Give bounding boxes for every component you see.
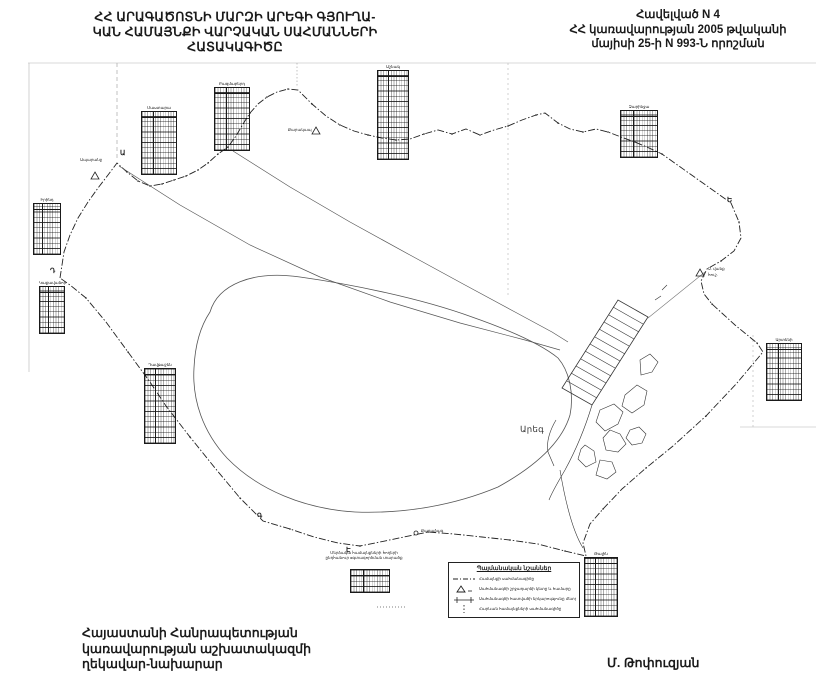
label-karadzag: Քարաձագ (421, 529, 443, 534)
coord-table-10-grid (350, 569, 390, 593)
coord-table-4: Իրինդ (33, 197, 61, 255)
vertex-letter-e: Ե (727, 197, 732, 204)
legend-item-adjacent-label: Հարևան համայնքների սահմանագիծը (479, 607, 561, 612)
legend-item-segment: Սահմանագծի հատվածի երկարությունը մետրերո… (452, 594, 576, 604)
coord-table-3: Աշնակ (377, 64, 409, 160)
legend-item-segment-label: Սահմանագծի հատվածի երկարությունը մետրերո… (479, 597, 576, 602)
authority-line3: ղեկավար-նախարար (82, 657, 311, 673)
coord-table-7-grid (620, 110, 658, 158)
authority-line2: կառավարության աշխատակազմի (82, 642, 311, 658)
coord-table-9-caption: Թալին (584, 551, 618, 556)
coord-table-9-grid (584, 557, 618, 617)
legend-item-boundary-label: Համայնքի սահմանագիծը (479, 577, 534, 582)
signature-name: Մ. Թոփուզյան (607, 655, 699, 670)
coord-table-8: Արտենի (766, 337, 802, 401)
issuing-authority: Հայաստանի Հանրապետության կառավարության ա… (82, 626, 311, 673)
label-karakap: Քարակապ (288, 128, 312, 133)
coord-table-5-caption: Կաքավաձոր (39, 280, 66, 285)
coord-table-8-caption: Արտենի (766, 337, 802, 342)
coord-table-5-grid (39, 286, 65, 334)
scanned-map-page: ՀՀ ԱՐԱԳԱԾՈՏՆԻ ՄԱՐԶԻ ԱՐԵԳԻ ԳՅՈՒՂԱ- ԿԱՆ ՀԱ… (0, 0, 816, 680)
coord-table-1-caption: Մաստարա (141, 105, 177, 110)
coord-table-6-caption: Դավթաշեն (144, 362, 176, 367)
dash-dot-line-icon (452, 576, 476, 582)
legend-item-turn-point: Սահմանագծի շրջադարձի կետը և համարը (452, 584, 576, 594)
legend-title: Պայմանական նշաններ (452, 565, 576, 572)
coord-table-8-grid (766, 343, 802, 401)
coord-table-4-caption: Իրինդ (33, 197, 61, 202)
vertex-letter-d: Դ (50, 268, 55, 275)
coord-table-2: Բազմաբերդ (214, 81, 250, 151)
legend-item-adjacent: Հարևան համայնքների սահմանագիծը (452, 604, 576, 614)
note-line2: ընդհանուր օգտագործման տարածք (314, 555, 414, 560)
interior-land-loop (194, 275, 572, 512)
internal-division-lines (119, 151, 568, 350)
coord-table-5: Կաքավաձոր (39, 280, 66, 334)
dotted-line-icon (452, 605, 476, 613)
coord-table-6-grid (144, 368, 176, 444)
label-aparan: Ապարանջ (80, 158, 102, 163)
adjacent-lands-note: Մերձակա համայնքների հողերի ընդհանուր օգտ… (314, 550, 414, 560)
coord-table-2-caption: Բազմաբերդ (214, 81, 250, 86)
coord-table-4-grid (33, 203, 61, 255)
coord-table-3-caption: Աշնակ (377, 64, 409, 69)
legend-box: Պայմանական նշաններ Համայնքի սահմանագիծը … (448, 562, 580, 618)
authority-line1: Հայաստանի Հանրապետության (82, 626, 311, 642)
vertex-letter-g: Գ (257, 513, 262, 520)
legend-item-turn-point-label: Սահմանագծի շրջադարձի կետը և համարը (479, 587, 571, 592)
hatched-settlement-band (562, 300, 648, 405)
coord-table-10 (350, 568, 390, 593)
coord-table-9: Թալին (584, 551, 618, 617)
triangulation-point-icons (91, 127, 704, 535)
coord-table-7-caption: Զարինջա (620, 104, 658, 109)
coord-table-3-grid (377, 70, 409, 160)
legend-item-boundary: Համայնքի սահմանագիծը (452, 574, 576, 584)
coord-table-2-grid (214, 87, 250, 151)
label-vank-line1: Ս. վանք (708, 267, 725, 272)
coord-table-1-grid (141, 111, 177, 175)
coord-table-6: Դավթաշեն (144, 362, 176, 444)
vertex-letter-a: Ա (120, 150, 125, 157)
label-vank-line2: հուշ. (708, 273, 718, 278)
coord-table-1: Մաստարա (141, 105, 177, 175)
coord-table-7: Զարինջա (620, 104, 658, 158)
segment-ticks-icon (452, 595, 476, 603)
label-settlement-areg: Արեգ (520, 425, 544, 434)
triangle-point-icon (452, 585, 476, 593)
